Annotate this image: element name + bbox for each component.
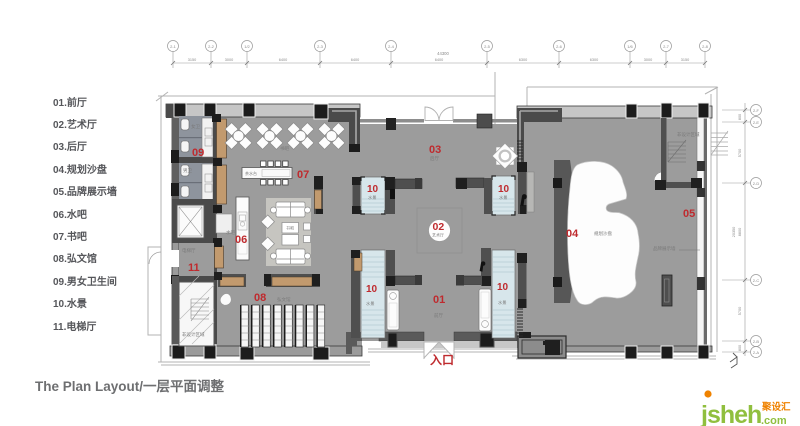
svg-text:入口: 入口: [430, 353, 454, 367]
svg-text:2-A: 2-A: [753, 350, 760, 355]
svg-text:01.前厅: 01.前厅: [53, 96, 87, 109]
svg-text:09: 09: [192, 147, 204, 159]
svg-text:1/6: 1/6: [627, 44, 633, 49]
svg-text:2-E: 2-E: [753, 120, 760, 125]
svg-text:8800: 8800: [738, 228, 742, 236]
svg-text:07.书吧: 07.书吧: [53, 230, 87, 243]
svg-text:10: 10: [367, 184, 379, 195]
svg-text:.com: .com: [761, 415, 787, 426]
svg-text:非设计区域: 非设计区域: [677, 131, 700, 138]
svg-text:2-8: 2-8: [702, 44, 709, 49]
svg-text:2-2: 2-2: [208, 44, 215, 49]
svg-text:6400: 6400: [279, 58, 287, 62]
svg-text:规划沙盘: 规划沙盘: [594, 230, 612, 237]
svg-text:1/2: 1/2: [244, 44, 250, 49]
svg-text:08: 08: [254, 292, 266, 304]
svg-text:09.男女卫生间: 09.男女卫生间: [53, 275, 117, 288]
svg-text:03.后厅: 03.后厅: [53, 140, 87, 153]
svg-text:44300: 44300: [437, 51, 449, 56]
svg-text:2-D: 2-D: [753, 181, 760, 186]
svg-text:01: 01: [433, 294, 445, 306]
svg-text:2-3: 2-3: [317, 44, 324, 49]
svg-text:2-7: 2-7: [663, 44, 670, 49]
svg-text:05: 05: [683, 208, 695, 220]
svg-text:水景: 水景: [366, 300, 374, 307]
svg-text:10.水景: 10.水景: [53, 297, 87, 310]
svg-text:3000: 3000: [225, 58, 233, 62]
svg-text:jsheh: jsheh: [700, 401, 761, 426]
svg-text:08.弘文馆: 08.弘文馆: [53, 252, 97, 265]
svg-text:3150: 3150: [188, 58, 196, 62]
svg-text:2-6: 2-6: [556, 44, 563, 49]
svg-text:06: 06: [235, 234, 247, 246]
svg-text:06.水吧: 06.水吧: [53, 208, 87, 221]
svg-text:The Plan Layout/一层平面调整: The Plan Layout/一层平面调整: [35, 378, 225, 394]
svg-text:11: 11: [188, 262, 200, 274]
svg-text:03: 03: [429, 144, 441, 156]
svg-text:6300: 6300: [519, 58, 527, 62]
svg-text:5700: 5700: [738, 149, 742, 157]
svg-text:20350: 20350: [732, 227, 736, 238]
svg-text:07: 07: [297, 169, 309, 181]
svg-text:水景: 水景: [498, 299, 506, 306]
svg-text:2-1: 2-1: [170, 44, 177, 49]
svg-text:茶水台: 茶水台: [245, 170, 257, 176]
svg-text:800: 800: [738, 345, 742, 351]
svg-text:10: 10: [497, 282, 509, 293]
svg-text:电梯厅: 电梯厅: [182, 247, 196, 254]
svg-text:前厅: 前厅: [434, 312, 443, 319]
svg-text:2-5: 2-5: [484, 44, 491, 49]
svg-text:水景: 水景: [499, 194, 507, 201]
svg-text:书吧: 书吧: [280, 145, 289, 152]
svg-text:6400: 6400: [435, 58, 443, 62]
svg-text:5700: 5700: [738, 307, 742, 315]
svg-text:800: 800: [738, 114, 742, 120]
svg-text:6300: 6300: [590, 58, 598, 62]
svg-text:水景: 水景: [368, 194, 376, 201]
svg-text:11.电梯厅: 11.电梯厅: [53, 320, 96, 333]
svg-text:2-C: 2-C: [753, 278, 760, 283]
svg-text:艺术厅: 艺术厅: [432, 232, 444, 238]
svg-text:2-B: 2-B: [753, 339, 760, 344]
svg-text:女卫: 女卫: [191, 123, 200, 130]
svg-text:04: 04: [566, 228, 579, 240]
svg-text:02.艺术厅: 02.艺术厅: [53, 118, 97, 131]
svg-text:非设计区域: 非设计区域: [182, 331, 205, 338]
svg-text:05.品牌展示墙: 05.品牌展示墙: [53, 185, 117, 198]
svg-text:02: 02: [433, 221, 445, 233]
svg-text:6400: 6400: [351, 58, 359, 62]
svg-text:2-4: 2-4: [388, 44, 395, 49]
svg-text:后厅: 后厅: [430, 155, 439, 162]
svg-text:聚设汇: 聚设汇: [761, 401, 791, 413]
svg-text:品牌展示墙: 品牌展示墙: [653, 245, 676, 252]
svg-text:10: 10: [366, 284, 378, 295]
svg-text:书吧: 书吧: [286, 225, 294, 231]
svg-text:弘文馆: 弘文馆: [277, 296, 291, 303]
svg-text:04.规划沙盘: 04.规划沙盘: [53, 163, 107, 176]
svg-text:10: 10: [498, 184, 510, 195]
svg-text:2-F: 2-F: [753, 108, 760, 113]
svg-text:3000: 3000: [644, 58, 652, 62]
svg-text:3150: 3150: [681, 58, 689, 62]
